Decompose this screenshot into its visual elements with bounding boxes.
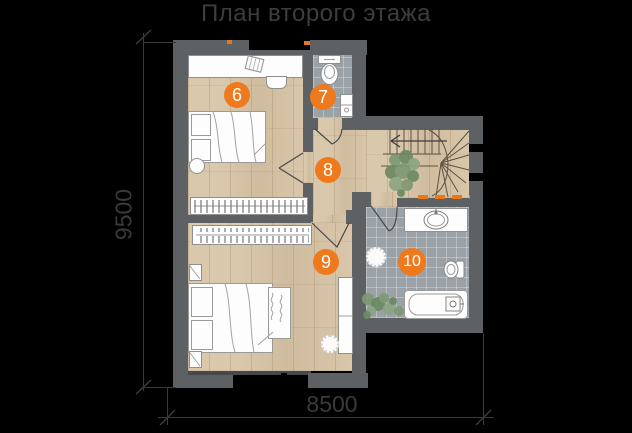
dimension-ext-left xyxy=(167,388,168,425)
nightstand-icon xyxy=(189,264,202,281)
pillow-icon xyxy=(191,114,211,136)
closet-strip-bedroom-9 xyxy=(192,225,312,245)
wall-wc-bottom-left xyxy=(303,118,318,130)
washbasin-icon-wc xyxy=(340,94,353,117)
toilet-cistern-icon-wc xyxy=(318,55,341,64)
room-badge-6: 6 xyxy=(224,82,250,108)
wall-bottom-right-pier xyxy=(308,373,368,388)
floor-hall-8-stairs xyxy=(366,126,469,198)
tv-unit-icon xyxy=(266,76,287,89)
dimension-ext-bottom xyxy=(143,387,176,388)
pillow-icon xyxy=(191,320,213,350)
dimension-ext-top xyxy=(143,42,176,43)
floor-door-gap-bathroom-10 xyxy=(371,192,397,207)
wall-stairhall-top xyxy=(352,116,483,130)
pillow-icon xyxy=(191,287,213,317)
room-number: 7 xyxy=(318,88,328,106)
wall-bottom-left-pier xyxy=(175,375,233,388)
dresser-icon xyxy=(338,277,353,354)
room-badge-7: 7 xyxy=(310,84,336,110)
dimension-label-width: 8500 xyxy=(297,391,367,418)
room-number: 9 xyxy=(321,253,331,271)
floor-plan: 6 7 8 9 10 9500 8500 xyxy=(0,0,632,433)
window-slit-right-1 xyxy=(469,144,483,152)
wall-left xyxy=(173,40,188,388)
window-slit-right-2 xyxy=(469,173,483,181)
round-rug-icon xyxy=(321,335,339,353)
wall-bottom-middle xyxy=(188,371,311,375)
room-number: 10 xyxy=(403,254,421,270)
room-number: 6 xyxy=(232,86,242,104)
wall-mid-divider xyxy=(173,215,311,223)
room-badge-9: 9 xyxy=(313,249,339,275)
dimension-ext-right xyxy=(483,333,484,425)
floor-door-gap-bedroom-9 xyxy=(311,215,349,223)
wall-bathroom-bottom xyxy=(352,318,483,333)
bench-icon xyxy=(268,287,291,339)
nightstand-icon xyxy=(189,351,202,368)
wall-mid-divider-stub xyxy=(349,215,352,223)
bathtub-icon xyxy=(404,290,468,319)
room-badge-10: 10 xyxy=(398,248,426,276)
wall-hall-bathroom-top xyxy=(397,198,469,207)
dimension-label-height: 9500 xyxy=(111,185,138,245)
closet-strip-bedroom-6 xyxy=(190,197,308,215)
wall-bedroom9-right xyxy=(352,192,366,375)
room-badge-8: 8 xyxy=(315,157,341,183)
pouf-icon xyxy=(189,158,205,174)
floor-door-gap-bedroom-6 xyxy=(303,152,313,183)
room-number: 8 xyxy=(323,161,333,179)
wall-top-left xyxy=(173,40,249,55)
round-rug-icon xyxy=(366,247,386,267)
sink-counter-icon xyxy=(404,208,468,232)
window-slit-bottom xyxy=(281,373,287,388)
dimension-line-vertical xyxy=(143,33,144,391)
wall-wc-bottom-right xyxy=(342,118,352,130)
wall-hall-bathroom-left xyxy=(366,192,371,207)
